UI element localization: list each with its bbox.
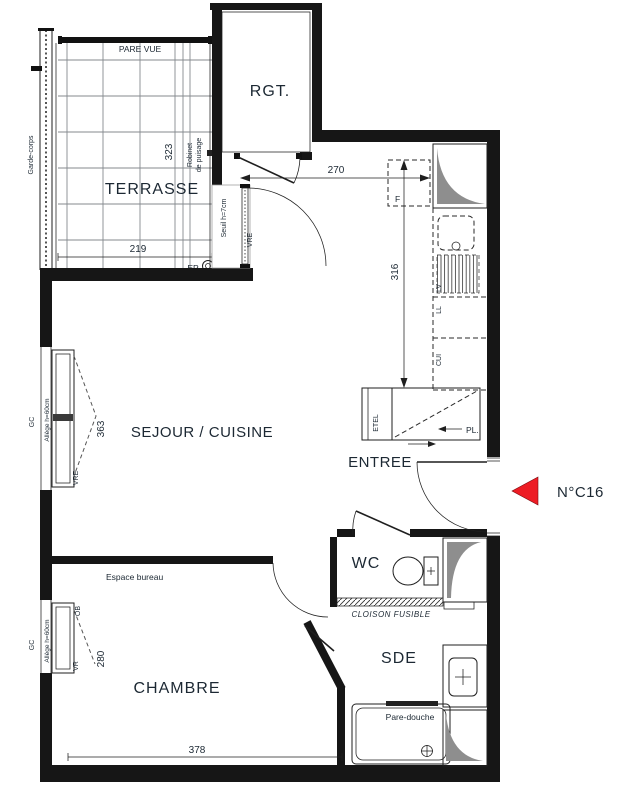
chambre-sde-wall bbox=[337, 686, 345, 765]
sejour-cuisine-label: SEJOUR / CUISINE bbox=[131, 424, 273, 441]
terrasse-south-wall bbox=[40, 268, 253, 281]
allege-chambre-label: Allège h=60cm bbox=[44, 619, 51, 662]
cloison-fusible-label: CLOISON FUSIBLE bbox=[351, 610, 430, 619]
floor-plan-page: PARE VUE Garde-corps TERRASSE 323 219 Ro… bbox=[0, 0, 643, 800]
pare-douche-label: Pare-douche bbox=[386, 712, 435, 722]
espace-bureau-label: Espace bureau bbox=[106, 572, 163, 582]
placard-label: PL. bbox=[466, 425, 479, 435]
etel-label: ETEL bbox=[373, 414, 380, 432]
railing-post-mark bbox=[31, 66, 42, 71]
sde-label: SDE bbox=[381, 650, 417, 667]
lave-vaisselle-label: LV bbox=[436, 284, 443, 292]
left-wall-seg1 bbox=[40, 268, 52, 347]
wc-top-wall-right bbox=[410, 529, 487, 537]
gc-sejour-label: GC bbox=[29, 417, 36, 428]
terrasse-rgt-wall bbox=[212, 3, 222, 185]
kitchen-width-dim: 270 bbox=[328, 165, 345, 176]
sink-drainer bbox=[437, 255, 479, 293]
terrasse-width-dim: 219 bbox=[130, 244, 147, 255]
entree-label: ENTREE bbox=[348, 454, 412, 471]
kitchen-top-wall bbox=[312, 130, 490, 142]
rgt-label: RGT. bbox=[250, 83, 290, 100]
rgt-top-wall bbox=[210, 3, 322, 10]
lave-linge-label: LL bbox=[436, 306, 443, 314]
cuisiniere-label: CUI bbox=[436, 354, 443, 366]
gc-chambre-label: GC bbox=[29, 640, 36, 651]
bottom-wall bbox=[40, 765, 500, 782]
chambre-window-dim: 280 bbox=[96, 650, 107, 667]
ob-chambre-label: OB bbox=[75, 606, 82, 616]
vr-chambre-label: VR bbox=[73, 661, 80, 671]
terrasse-depth-dim: 323 bbox=[164, 143, 175, 160]
sejour-window-dim: 363 bbox=[96, 420, 107, 437]
allege-sejour-label: Allège h=60cm bbox=[44, 398, 51, 441]
garde-corps-label: Garde-corps bbox=[28, 135, 35, 174]
robinet-label-line1: Robinet bbox=[187, 143, 194, 167]
terrasse-label: TERRASSE bbox=[105, 181, 199, 198]
chambre-label: CHAMBRE bbox=[133, 680, 220, 697]
pare-vue-screen bbox=[58, 36, 212, 44]
sejour-chambre-wall bbox=[52, 556, 273, 564]
wc-top-wall-left bbox=[337, 529, 355, 537]
right-wall-lower bbox=[487, 536, 500, 782]
left-wall-seg2 bbox=[40, 490, 52, 600]
wc-label: WC bbox=[352, 555, 381, 572]
unit-number-label: N°C16 bbox=[557, 484, 604, 501]
floor-plan-drawing: PARE VUE Garde-corps TERRASSE 323 219 Ro… bbox=[0, 0, 643, 800]
fridge-label: F bbox=[395, 194, 400, 204]
seuil-label: Seuil h=7cm bbox=[221, 198, 228, 237]
pare-vue-label: PARE VUE bbox=[119, 44, 162, 54]
vre-sejour-window-label: VRE bbox=[73, 470, 80, 485]
wc-left-wall bbox=[330, 537, 337, 607]
robinet-label-line2: de puisage bbox=[196, 138, 203, 172]
vre-terrace-door-label: VRE bbox=[247, 232, 254, 247]
kitchen-depth-dim: 316 bbox=[390, 263, 401, 280]
rgt-right-wall bbox=[312, 3, 322, 140]
shower-screen bbox=[386, 701, 438, 706]
chambre-width-dim: 378 bbox=[189, 745, 206, 756]
left-wall-seg3 bbox=[40, 673, 52, 765]
right-wall-upper bbox=[487, 130, 500, 457]
